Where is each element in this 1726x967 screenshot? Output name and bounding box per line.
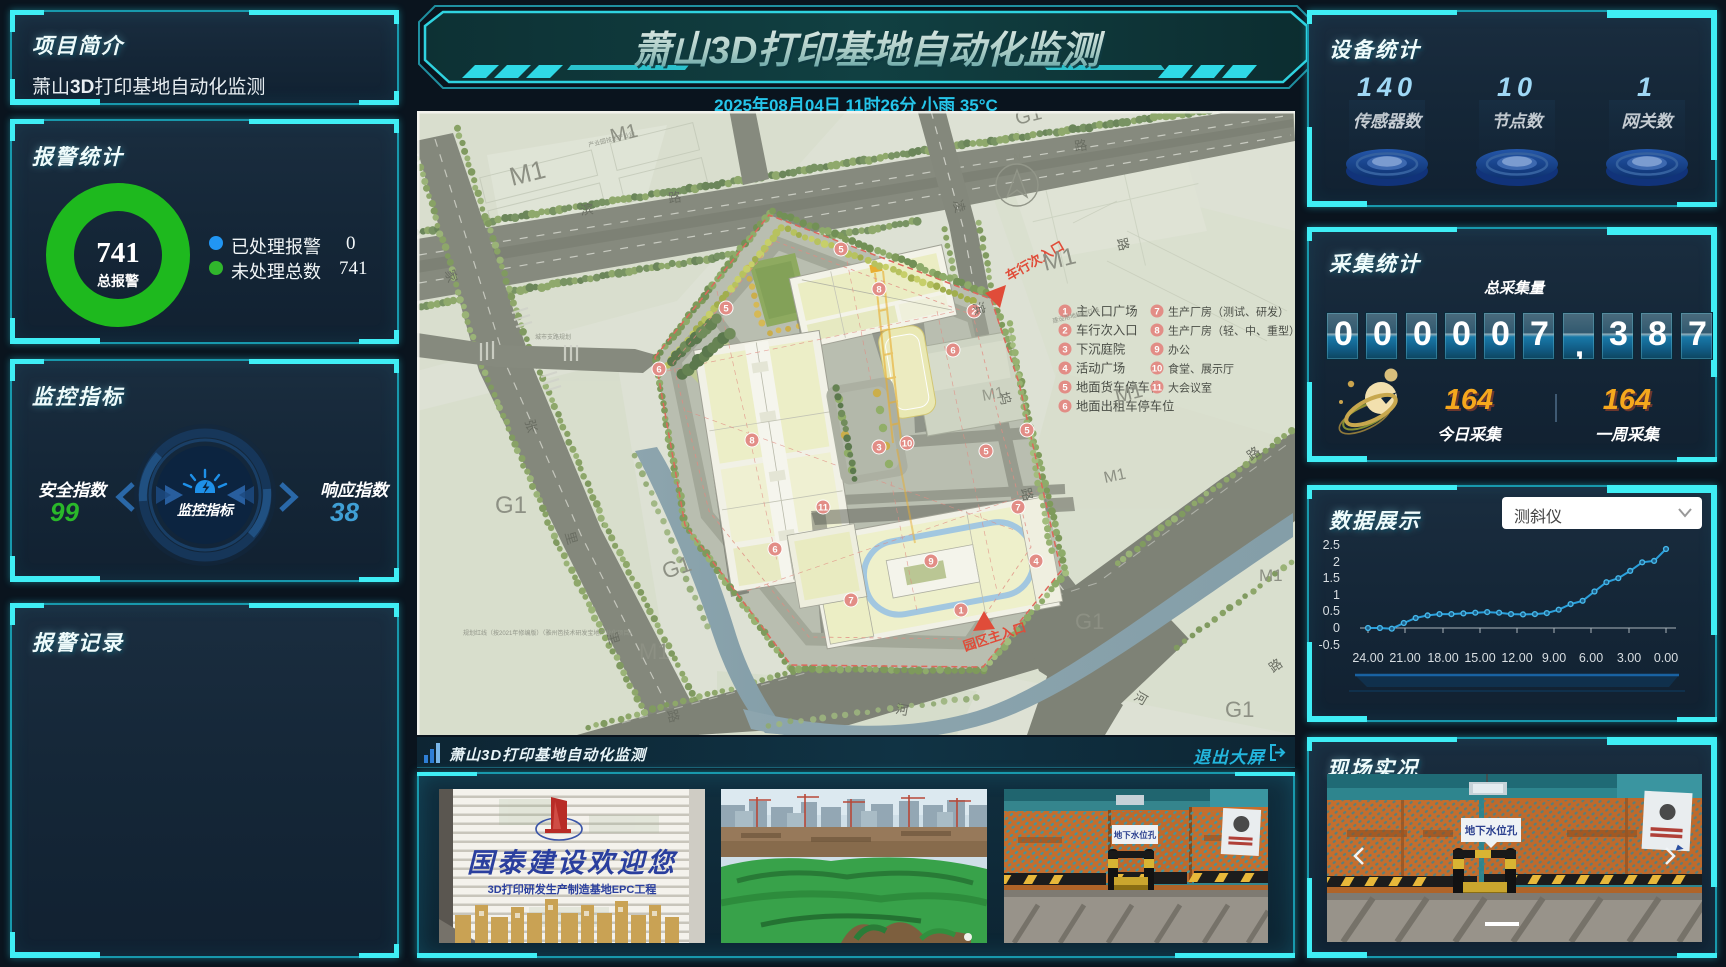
svg-text:9.00: 9.00 — [1542, 651, 1566, 665]
svg-text:国泰建设欢迎您: 国泰建设欢迎您 — [467, 848, 679, 878]
svg-text:监控指标: 监控指标 — [177, 502, 235, 518]
svg-text:0.00: 0.00 — [1654, 651, 1678, 665]
svg-text:-0.5: -0.5 — [1319, 638, 1340, 652]
svg-text:21.00: 21.00 — [1389, 651, 1420, 665]
svg-text:6.00: 6.00 — [1579, 651, 1603, 665]
svg-text:2.5: 2.5 — [1323, 538, 1340, 552]
svg-text:18.00: 18.00 — [1427, 651, 1458, 665]
svg-text:15.00: 15.00 — [1464, 651, 1495, 665]
svg-text:地下水位孔: 地下水位孔 — [1465, 824, 1518, 837]
svg-text:24.00: 24.00 — [1352, 651, 1383, 665]
svg-text:12.00: 12.00 — [1501, 651, 1532, 665]
svg-text:0: 0 — [1333, 621, 1340, 635]
svg-text:3.00: 3.00 — [1617, 651, 1641, 665]
svg-text:0.5: 0.5 — [1323, 604, 1340, 618]
svg-text:1.5: 1.5 — [1323, 571, 1340, 585]
svg-text:地下水位孔: 地下水位孔 — [1114, 830, 1157, 840]
svg-text:萧山3D打印基地自动化监测: 萧山3D打印基地自动化监测 — [633, 30, 1106, 72]
svg-text:3D打印研发生产制造基地EPC工程: 3D打印研发生产制造基地EPC工程 — [488, 882, 657, 896]
svg-text:1: 1 — [1333, 588, 1340, 602]
svg-text:2: 2 — [1333, 555, 1340, 569]
